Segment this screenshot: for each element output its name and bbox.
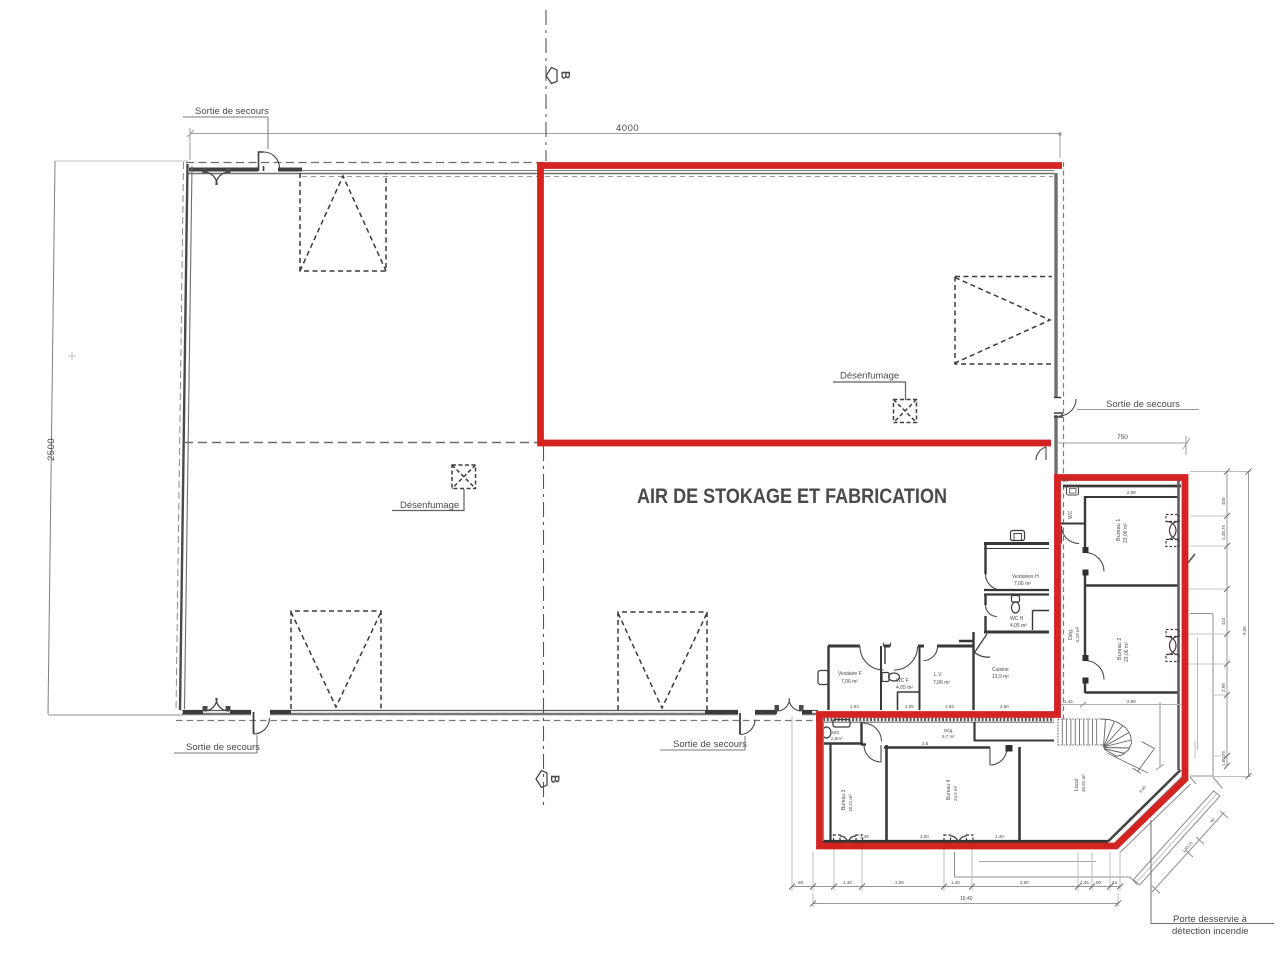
svg-text:Sortie de secours: Sortie de secours xyxy=(195,106,269,117)
svg-text:1,45: 1,45 xyxy=(1064,699,1073,704)
svg-text:2,98: 2,98 xyxy=(1127,490,1136,495)
svg-text:2,6: 2,6 xyxy=(922,741,929,746)
svg-text:9,7 m²: 9,7 m² xyxy=(942,734,955,739)
svg-text:L.V.: L.V. xyxy=(934,672,942,678)
svg-text:90: 90 xyxy=(798,880,804,885)
svg-text:3,00: 3,00 xyxy=(895,880,904,885)
svg-text:4,05 m²: 4,05 m² xyxy=(896,685,913,691)
svg-text:5,10 m²: 5,10 m² xyxy=(1075,626,1080,642)
svg-text:Sortie de secours: Sortie de secours xyxy=(673,739,747,750)
svg-text:2,98: 2,98 xyxy=(1221,683,1226,692)
svg-text:40,81 m²: 40,81 m² xyxy=(1081,774,1086,792)
svg-text:23,06 m²: 23,06 m² xyxy=(1124,642,1130,662)
svg-text:4000: 4000 xyxy=(616,123,639,134)
svg-text:AIR DE STOKAGE ET FABRICATION: AIR DE STOKAGE ET FABRICATION xyxy=(637,484,947,508)
svg-text:1,05: 1,05 xyxy=(905,704,914,709)
svg-text:7,06 m²: 7,06 m² xyxy=(933,680,950,686)
svg-text:2,90: 2,90 xyxy=(1020,880,1029,885)
svg-text:1,40: 1,40 xyxy=(995,834,1004,839)
svg-text:1,40: 1,40 xyxy=(951,880,960,885)
svg-text:2,60: 2,60 xyxy=(1000,704,1009,709)
svg-text:90: 90 xyxy=(1096,880,1102,885)
svg-text:415: 415 xyxy=(1221,617,1226,625)
svg-text:24,5 m²: 24,5 m² xyxy=(953,785,958,801)
svg-text:Local: Local xyxy=(1074,779,1080,791)
svg-text:2,5m²: 2,5m² xyxy=(831,736,843,741)
svg-text:Sortie de secours: Sortie de secours xyxy=(186,742,260,753)
svg-text:2500: 2500 xyxy=(46,438,57,461)
svg-text:1,93: 1,93 xyxy=(945,704,954,709)
svg-text:WC: WC xyxy=(832,730,840,735)
svg-text:WC H: WC H xyxy=(1010,616,1024,622)
svg-text:450: 450 xyxy=(1221,497,1226,505)
svg-text:1,45: 1,45 xyxy=(1080,880,1089,885)
svg-text:2,98: 2,98 xyxy=(1127,699,1136,704)
svg-text:détection incendie: détection incendie xyxy=(1172,926,1249,937)
svg-text:23,06 m²: 23,06 m² xyxy=(1123,523,1129,543)
svg-text:1,60,75: 1,60,75 xyxy=(1221,750,1226,766)
svg-text:B: B xyxy=(548,775,560,783)
svg-text:WC: WC xyxy=(1068,510,1074,519)
svg-text:7,06 m²: 7,06 m² xyxy=(1014,581,1031,587)
svg-text:Désenfumage: Désenfumage xyxy=(400,500,459,511)
svg-text:B: B xyxy=(559,71,571,79)
svg-text:Sortie de secours: Sortie de secours xyxy=(1106,399,1180,410)
svg-text:1,93: 1,93 xyxy=(850,704,859,709)
svg-text:18,21 m²: 18,21 m² xyxy=(848,794,853,812)
svg-text:4,05 m²: 4,05 m² xyxy=(1010,623,1027,629)
svg-text:3,00: 3,00 xyxy=(920,834,929,839)
svg-text:Dég.: Dég. xyxy=(944,728,954,733)
svg-text:7,06 m²: 7,06 m² xyxy=(841,679,858,685)
svg-text:Dég.: Dég. xyxy=(1068,628,1074,640)
svg-text:Vestiaire F: Vestiaire F xyxy=(838,671,862,677)
svg-text:45: 45 xyxy=(1112,880,1118,885)
svg-text:16,40: 16,40 xyxy=(960,896,973,902)
svg-text:Cuisine: Cuisine xyxy=(992,667,1009,673)
svg-text:Bureau 3: Bureau 3 xyxy=(841,789,847,810)
svg-text:1,40: 1,40 xyxy=(860,834,869,839)
svg-text:Porte desservie à: Porte desservie à xyxy=(1173,914,1248,925)
svg-text:9,06: 9,06 xyxy=(1242,626,1247,635)
svg-text:Bureau 2: Bureau 2 xyxy=(1117,638,1123,660)
svg-text:Vestiaires H: Vestiaires H xyxy=(1012,574,1039,580)
svg-text:13,9 m²: 13,9 m² xyxy=(992,674,1009,680)
svg-text:Bureau 4: Bureau 4 xyxy=(946,779,952,800)
svg-text:90: 90 xyxy=(1063,478,1069,483)
svg-text:Bureau 1: Bureau 1 xyxy=(1116,519,1122,541)
svg-text:1,40: 1,40 xyxy=(843,880,852,885)
svg-text:1,48,75: 1,48,75 xyxy=(1221,524,1226,540)
svg-text:WC F: WC F xyxy=(896,678,909,684)
svg-text:Désenfumage: Désenfumage xyxy=(840,371,899,382)
svg-text:750: 750 xyxy=(1117,434,1128,441)
